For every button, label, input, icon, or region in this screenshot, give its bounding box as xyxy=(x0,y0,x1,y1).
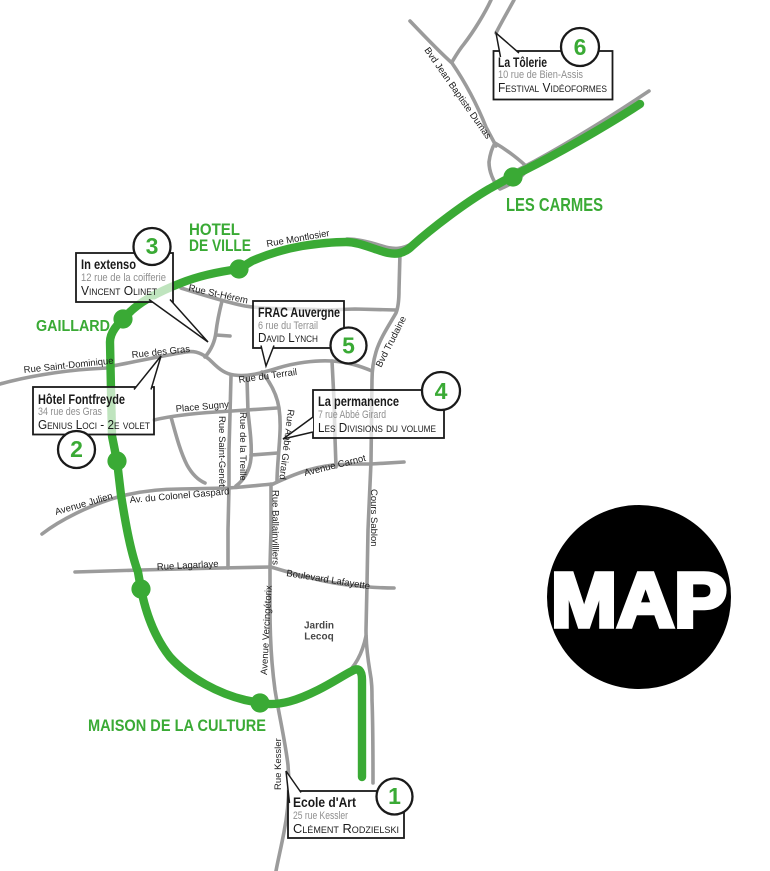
svg-text:Cours Sablon: Cours Sablon xyxy=(368,489,379,547)
svg-text:Ecole d'Art: Ecole d'Art xyxy=(293,795,356,810)
svg-text:6: 6 xyxy=(574,34,587,60)
svg-text:Rue St-Hérem: Rue St-Hérem xyxy=(187,283,249,307)
svg-text:Rue Ballainvilliers: Rue Ballainvilliers xyxy=(270,490,281,565)
svg-text:Rue de la Treille: Rue de la Treille xyxy=(237,412,248,481)
svg-text:4: 4 xyxy=(435,378,448,404)
svg-text:Festival Vidéoformes: Festival Vidéoformes xyxy=(498,80,607,95)
svg-text:GAILLARD: GAILLARD xyxy=(36,318,110,335)
svg-text:Jardin: Jardin xyxy=(304,621,334,632)
svg-text:Rue Saint-Genêt: Rue Saint-Genêt xyxy=(216,416,227,487)
svg-text:Rue Lagarlaye: Rue Lagarlaye xyxy=(157,559,219,573)
svg-text:Vincent Olinet: Vincent Olinet xyxy=(81,283,157,298)
svg-text:Lecoq: Lecoq xyxy=(304,632,333,643)
svg-text:In extenso: In extenso xyxy=(81,257,136,272)
svg-text:2: 2 xyxy=(70,436,83,462)
svg-text:Bvd Jean Baptiste Dumas: Bvd Jean Baptiste Dumas xyxy=(422,45,494,141)
svg-text:FRAC Auvergne: FRAC Auvergne xyxy=(258,305,340,320)
svg-text:MAP: MAP xyxy=(551,558,727,644)
svg-text:Clément Rodzielski: Clément Rodzielski xyxy=(293,821,399,836)
svg-text:La permanence: La permanence xyxy=(318,394,399,409)
svg-text:Avenue Julien: Avenue Julien xyxy=(54,491,114,518)
svg-text:Genius Loci - 2e volet: Genius Loci - 2e volet xyxy=(38,417,150,432)
svg-text:1: 1 xyxy=(388,783,401,809)
svg-text:Rue Kessler: Rue Kessler xyxy=(273,738,284,790)
svg-text:3: 3 xyxy=(146,233,159,259)
svg-text:Rue Saint-Dominique: Rue Saint-Dominique xyxy=(23,356,114,376)
svg-text:Hôtel Fontfreyde: Hôtel Fontfreyde xyxy=(38,392,125,407)
svg-text:MAISON DE LA CULTURE: MAISON DE LA CULTURE xyxy=(88,716,266,735)
svg-text:Boulevard Lafayette: Boulevard Lafayette xyxy=(286,568,371,592)
svg-text:Les Divisions du volume: Les Divisions du volume xyxy=(318,420,436,435)
svg-text:La Tôlerie: La Tôlerie xyxy=(498,55,547,70)
svg-text:David Lynch: David Lynch xyxy=(258,330,318,345)
svg-text:LES CARMES: LES CARMES xyxy=(506,195,603,215)
svg-text:DE VILLE: DE VILLE xyxy=(189,236,251,255)
svg-text:5: 5 xyxy=(342,333,355,359)
